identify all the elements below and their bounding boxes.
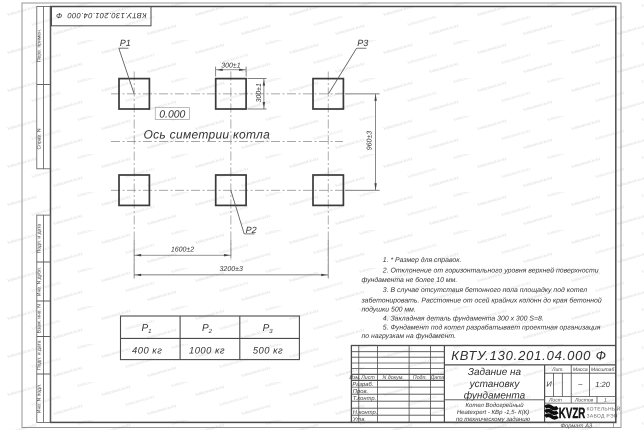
svg-text:Задание на: Задание на [468,367,522,378]
svg-text:N докум.: N докум. [382,375,403,381]
svg-text:Взам. инв. N: Взам. инв. N [37,304,43,334]
svg-text:Лит.: Лит. [551,367,564,373]
svg-text:Пров.: Пров. [353,389,368,395]
svg-text:3200±3: 3200±3 [220,266,243,273]
svg-text:1:20: 1:20 [595,380,610,389]
svg-text:Утв.: Утв. [352,417,366,423]
svg-text:Подп. и дата: Подп. и дата [37,224,43,254]
svg-text:И: И [546,380,552,389]
svg-text:Формат А3: Формат А3 [560,422,592,429]
svg-text:Изм.: Изм. [349,375,360,381]
svg-text:забетонировать. Расстояние от: забетонировать. Расстояние от осей крайн… [361,296,602,304]
svg-text:1600±2: 1600±2 [171,247,194,254]
svg-text:Масштаб: Масштаб [591,367,615,373]
svg-text:КВТУ.130.201.04.000 Ф: КВТУ.130.201.04.000 Ф [451,348,606,363]
svg-text:KVZR: KVZR [559,405,586,422]
svg-text:300±1: 300±1 [221,62,241,69]
svg-text:по техническому заданию: по техническому заданию [456,416,531,423]
svg-text:Т.контр.: Т.контр. [353,396,376,402]
svg-text:3. В случае отсутствия бетонно: 3. В случае отсутствия бетонного пола пл… [383,286,587,294]
svg-text:Масса: Масса [573,367,588,373]
svg-text:фундамента не более 10 мм.: фундамента не более 10 мм. [362,276,458,284]
svg-text:2. Отклонение от горизонтально: 2. Отклонение от горизонтального уровня … [382,266,599,274]
svg-text:Инв. N дубл.: Инв. N дубл. [37,267,43,296]
svg-text:Heatexpert - КВр -1,5- К(К): Heatexpert - КВр -1,5- К(К) [457,409,529,416]
svg-text:Котел Водогрейный: Котел Водогрейный [465,402,524,409]
svg-text:Н.контр.: Н.контр. [353,410,378,416]
svg-text:Перв. примен.: Перв. примен. [37,29,43,62]
svg-text:1000 кг: 1000 кг [189,344,225,355]
svg-text:5. Фундамент под котел разраба: 5. Фундамент под котел разрабатывает про… [383,323,601,331]
svg-text:–: – [577,380,583,389]
svg-text:300±1: 300±1 [256,83,263,103]
svg-text:ЗАВОД РЭП: ЗАВОД РЭП [587,414,618,420]
svg-text:1: 1 [604,398,607,404]
svg-text:Р1: Р1 [120,38,131,48]
svg-text:Р2: Р2 [246,225,257,235]
svg-text:Лист: Лист [548,398,562,404]
svg-text:подушки 500 мм.: подушки 500 мм. [362,307,416,314]
svg-text:0.000: 0.000 [159,109,185,120]
svg-text:500 кг: 500 кг [253,344,283,355]
svg-text:Дата: Дата [429,375,444,381]
svg-text:по нагрузкам на фундамент.: по нагрузкам на фундамент. [362,333,457,340]
svg-text:400 кг: 400 кг [132,344,162,355]
svg-text:4. Закладная деталь фундамента: 4. Закладная деталь фундамента 300 x 300… [383,316,544,323]
svg-text:Ось симетрии котла: Ось симетрии котла [144,128,271,142]
svg-text:установку: установку [469,379,521,390]
svg-text:Справ. N: Справ. N [37,128,43,149]
svg-text:Инв. N подл.: Инв. N подл. [37,384,43,413]
svg-text:КВТУ.130.201.04.000 Ф: КВТУ.130.201.04.000 Ф [56,11,147,20]
svg-text:960±3: 960±3 [367,131,374,151]
svg-text:Подп.: Подп. [413,375,427,381]
svg-text:Р3: Р3 [357,38,368,48]
svg-text:Лист: Лист [360,375,375,381]
svg-text:Разраб.: Разраб. [352,381,373,388]
svg-text:Листов: Листов [574,398,594,404]
svg-text:1. * Размер для справок.: 1. * Размер для справок. [383,257,462,264]
svg-text:Подп. и дата: Подп. и дата [37,340,43,370]
svg-text:КОТЕЛЬНЫЙ: КОТЕЛЬНЫЙ [587,406,621,413]
